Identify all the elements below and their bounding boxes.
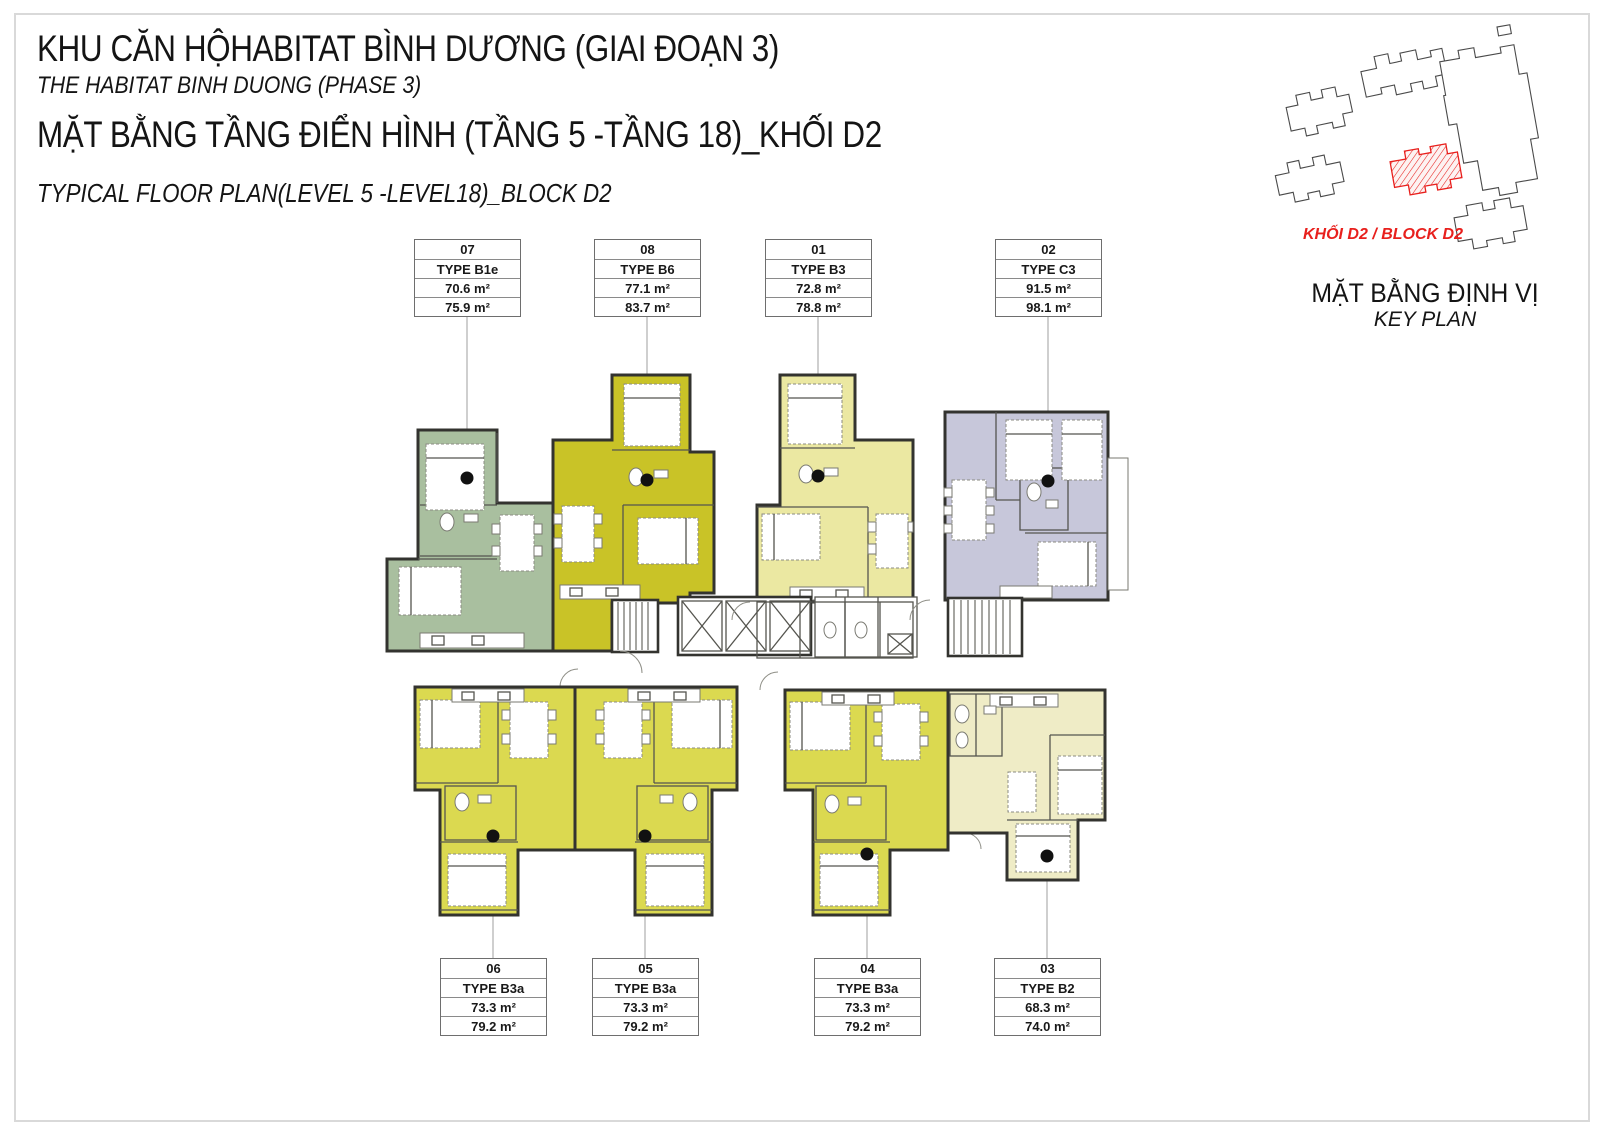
unit-label-04: 04 TYPE B3a 73.3 m² 79.2 m² — [814, 958, 921, 1036]
unit-area-net: 77.1 m² — [595, 278, 700, 297]
key-plan-map — [1273, 25, 1547, 252]
core-left-stair — [612, 600, 658, 652]
unit-label-06: 06 TYPE B3a 73.3 m² 79.2 m² — [440, 958, 547, 1036]
unit-type: TYPE B3 — [766, 259, 871, 278]
unit-01-plan — [757, 375, 913, 602]
key-plan-title-vi: MẶT BẰNG ĐỊNH VỊ — [1296, 278, 1554, 309]
unit-area-net: 68.3 m² — [995, 997, 1100, 1016]
unit-number: 07 — [415, 240, 520, 259]
unit-area-net: 72.8 m² — [766, 278, 871, 297]
unit-06-plan — [415, 687, 575, 915]
unit-label-03: 03 TYPE B2 68.3 m² 74.0 m² — [994, 958, 1101, 1036]
elevator-bank — [678, 597, 811, 655]
unit-number: 03 — [995, 959, 1100, 978]
unit-area-net: 73.3 m² — [815, 997, 920, 1016]
unit-type: TYPE C3 — [996, 259, 1101, 278]
floor-plan-drawing — [0, 0, 1600, 1131]
floor-plan-sheet: KHU CĂN HỘHABITAT BÌNH DƯƠNG (GIAI ĐOẠN … — [0, 0, 1600, 1131]
unit-03-plan — [948, 690, 1105, 880]
unit-area-gross: 74.0 m² — [995, 1016, 1100, 1035]
unit-number: 01 — [766, 240, 871, 259]
unit-04-plan — [785, 690, 948, 915]
unit-type: TYPE B3a — [593, 978, 698, 997]
unit-02-plan — [944, 412, 1128, 600]
unit-area-gross: 83.7 m² — [595, 297, 700, 316]
unit-area-gross: 98.1 m² — [996, 297, 1101, 316]
unit-label-01: 01 TYPE B3 72.8 m² 78.8 m² — [765, 239, 872, 317]
unit-area-gross: 79.2 m² — [815, 1016, 920, 1035]
unit-label-07: 07 TYPE B1e 70.6 m² 75.9 m² — [414, 239, 521, 317]
unit-type: TYPE B3a — [815, 978, 920, 997]
unit-05-plan — [575, 687, 737, 915]
unit-type: TYPE B6 — [595, 259, 700, 278]
unit-area-gross: 75.9 m² — [415, 297, 520, 316]
key-plan-block-d2-highlight — [1389, 142, 1464, 197]
unit-area-gross: 79.2 m² — [593, 1016, 698, 1035]
key-plan-title-en: KEY PLAN — [1285, 308, 1565, 332]
unit-number: 04 — [815, 959, 920, 978]
unit-number: 02 — [996, 240, 1101, 259]
unit-07-plan — [387, 430, 561, 651]
unit-type: TYPE B3a — [441, 978, 546, 997]
unit-type: TYPE B1e — [415, 259, 520, 278]
core-right-stair — [948, 598, 1022, 656]
unit-label-02: 02 TYPE C3 91.5 m² 98.1 m² — [995, 239, 1102, 317]
unit-area-net: 73.3 m² — [593, 997, 698, 1016]
unit-type: TYPE B2 — [995, 978, 1100, 997]
unit-area-net: 73.3 m² — [441, 997, 546, 1016]
unit-area-net: 70.6 m² — [415, 278, 520, 297]
core-service-rooms — [815, 597, 917, 657]
unit-area-gross: 79.2 m² — [441, 1016, 546, 1035]
unit-area-net: 91.5 m² — [996, 278, 1101, 297]
key-plan-block-label: KHỐI D2 / BLOCK D2 — [1258, 226, 1508, 244]
unit-number: 06 — [441, 959, 546, 978]
unit-label-08: 08 TYPE B6 77.1 m² 83.7 m² — [594, 239, 701, 317]
unit-number: 05 — [593, 959, 698, 978]
unit-area-gross: 78.8 m² — [766, 297, 871, 316]
unit-label-05: 05 TYPE B3a 73.3 m² 79.2 m² — [592, 958, 699, 1036]
unit-number: 08 — [595, 240, 700, 259]
